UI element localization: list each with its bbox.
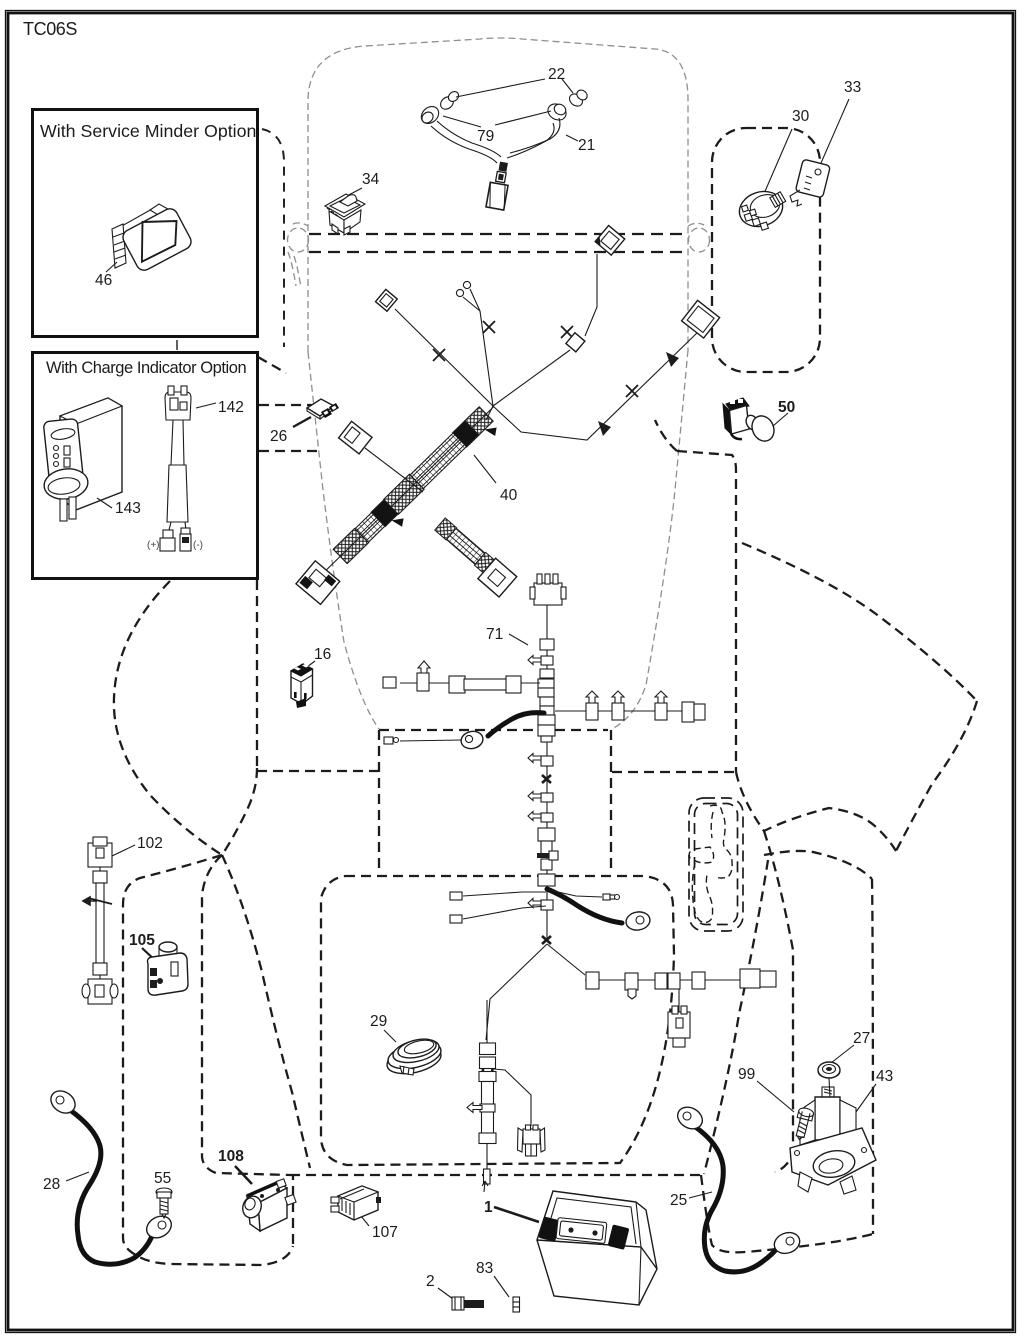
svg-text:55: 55 [154, 1170, 171, 1187]
svg-text:105: 105 [129, 932, 155, 949]
svg-text:30: 30 [792, 108, 810, 125]
svg-text:143: 143 [115, 500, 141, 517]
svg-text:71: 71 [486, 626, 503, 643]
svg-text:With Service Minder Option: With Service Minder Option [40, 121, 256, 141]
svg-text:107: 107 [372, 1224, 398, 1241]
svg-text:21: 21 [578, 137, 595, 154]
svg-text:142: 142 [218, 399, 244, 416]
svg-text:102: 102 [137, 835, 163, 852]
svg-text:99: 99 [738, 1066, 755, 1083]
svg-text:33: 33 [844, 79, 861, 96]
svg-text:43: 43 [876, 1068, 893, 1085]
svg-text:(-): (-) [193, 540, 203, 551]
svg-text:16: 16 [314, 646, 331, 663]
svg-text:79: 79 [477, 128, 494, 145]
svg-text:1: 1 [484, 1199, 493, 1216]
svg-text:(+): (+) [147, 540, 160, 551]
svg-text:34: 34 [362, 171, 380, 188]
svg-text:50: 50 [778, 399, 795, 416]
svg-text:28: 28 [43, 1176, 60, 1193]
svg-text:26: 26 [270, 428, 287, 445]
svg-text:27: 27 [853, 1030, 870, 1047]
svg-text:46: 46 [95, 272, 112, 289]
svg-text:108: 108 [218, 1148, 244, 1165]
svg-text:2: 2 [426, 1273, 435, 1290]
svg-text:83: 83 [476, 1260, 493, 1277]
svg-text:29: 29 [370, 1013, 387, 1030]
svg-text:With Charge Indicator Option: With Charge Indicator Option [46, 359, 246, 377]
svg-text:25: 25 [670, 1192, 687, 1209]
svg-text:40: 40 [500, 487, 518, 504]
svg-text:TC06S: TC06S [23, 19, 77, 39]
